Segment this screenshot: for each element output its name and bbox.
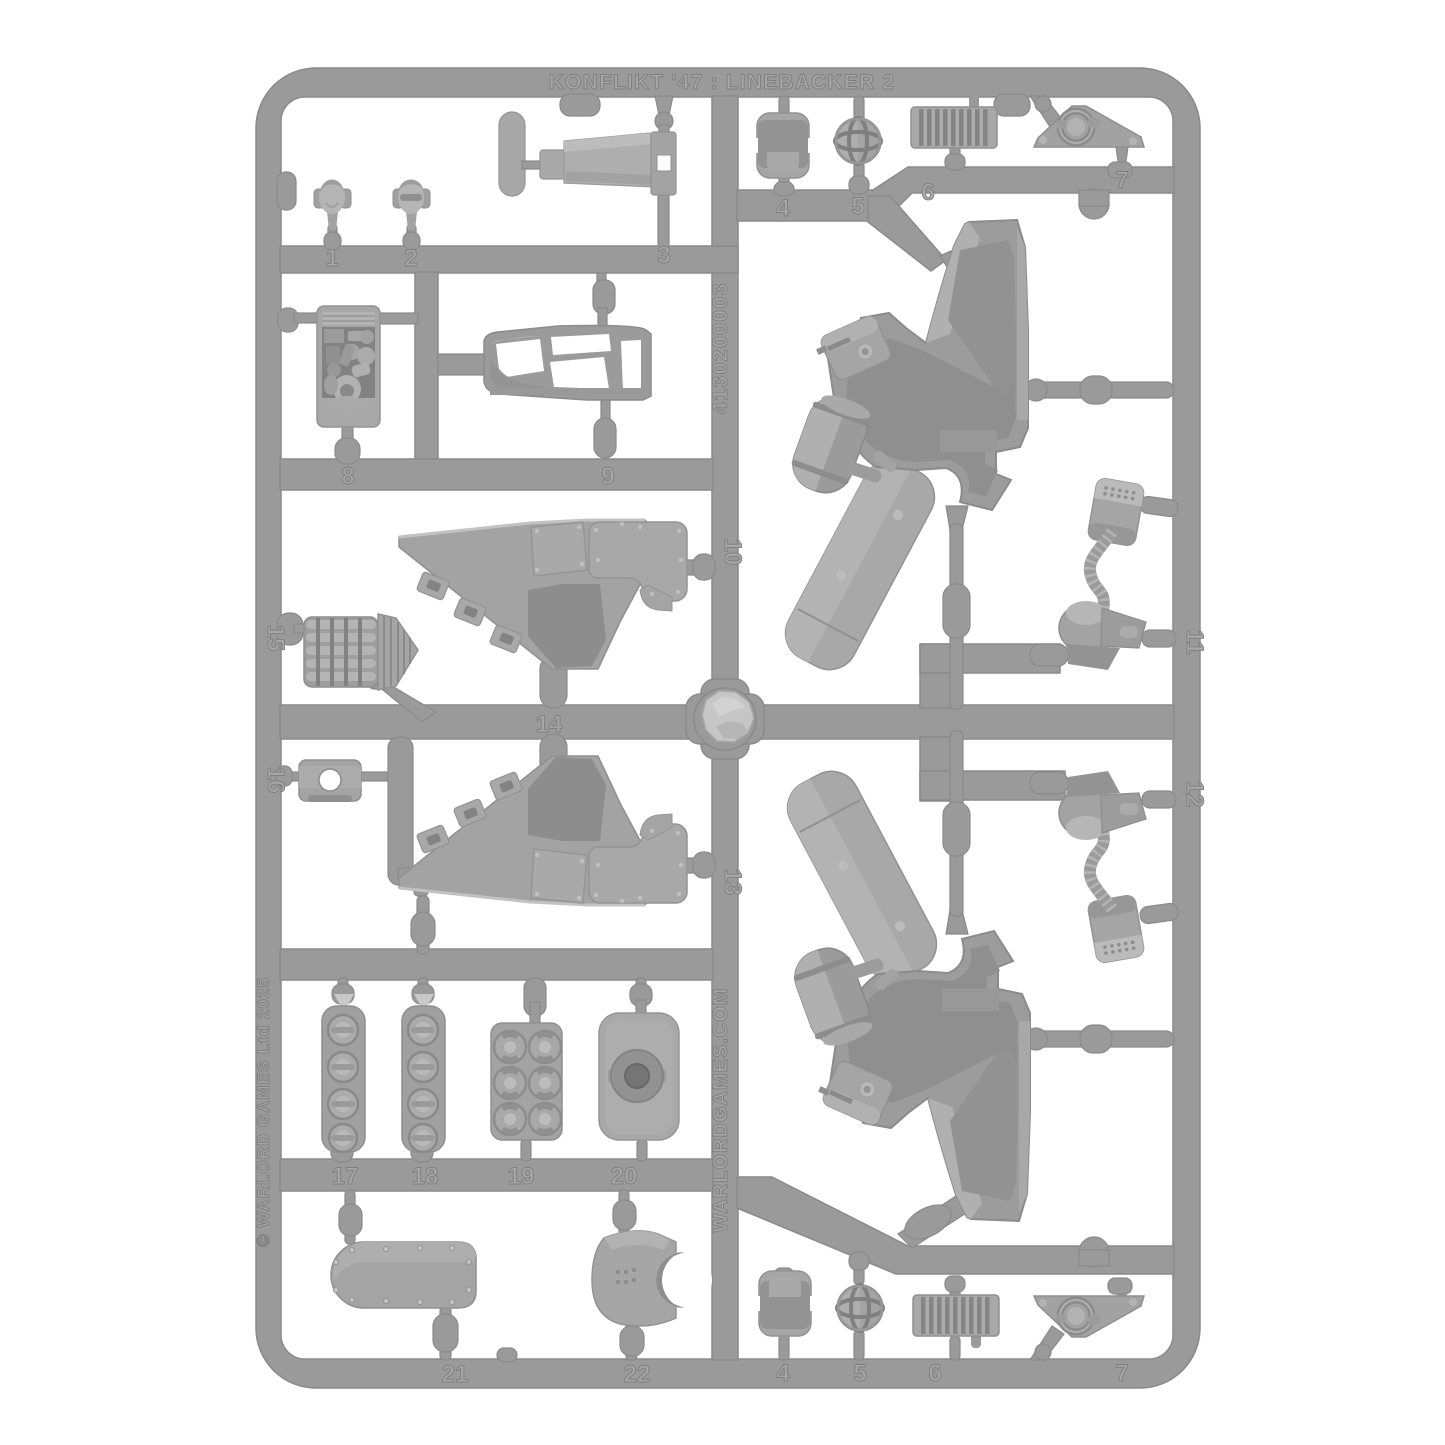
svg-text:4: 4 (776, 195, 790, 222)
svg-text:1: 1 (325, 245, 338, 272)
svg-text:22: 22 (624, 1361, 651, 1388)
svg-text:5: 5 (851, 193, 864, 220)
svg-text:13: 13 (719, 869, 746, 896)
svg-text:2: 2 (404, 245, 417, 272)
svg-text:17: 17 (332, 1163, 359, 1190)
svg-text:6: 6 (928, 1360, 941, 1387)
svg-text:4: 4 (776, 1360, 790, 1387)
svg-text:16: 16 (262, 767, 289, 794)
svg-text:15: 15 (262, 625, 289, 652)
svg-text:14: 14 (536, 711, 563, 738)
svg-text:3: 3 (657, 242, 670, 269)
svg-text:7: 7 (1115, 167, 1128, 194)
svg-text:5: 5 (853, 1360, 866, 1387)
svg-text:19: 19 (508, 1163, 535, 1190)
svg-text:20: 20 (611, 1163, 638, 1190)
svg-text:7: 7 (1115, 1360, 1128, 1387)
svg-text:11: 11 (1181, 629, 1208, 654)
svg-text:12: 12 (1181, 781, 1208, 808)
svg-text:10: 10 (719, 539, 746, 566)
svg-text:4130200003: 4130200003 (709, 282, 732, 414)
svg-text:18: 18 (412, 1163, 439, 1190)
svg-text:KONFLIKT '47 : LINEBACKER 2: KONFLIKT '47 : LINEBACKER 2 (549, 71, 896, 94)
svg-text:8: 8 (341, 463, 354, 490)
svg-text:© WARLORD GAMES Ltd 2025: © WARLORD GAMES Ltd 2025 (254, 977, 273, 1247)
svg-text:WARLORDGAMES.COM: WARLORDGAMES.COM (710, 988, 732, 1233)
svg-text:9: 9 (601, 463, 614, 490)
svg-text:21: 21 (442, 1361, 469, 1388)
svg-text:6: 6 (921, 179, 934, 206)
